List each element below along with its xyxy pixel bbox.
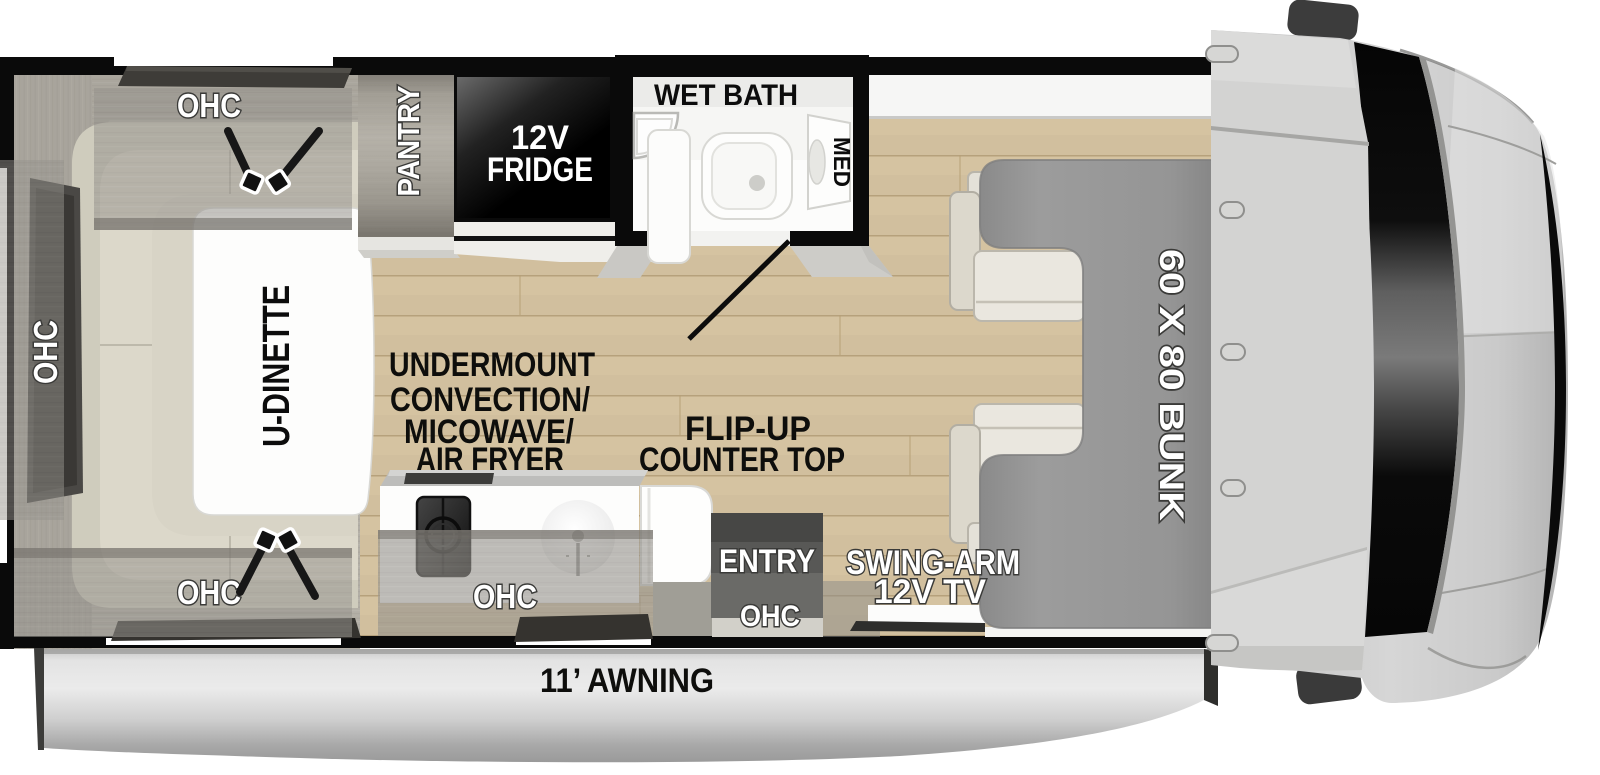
svg-text:UNDERMOUNT: UNDERMOUNT <box>389 346 595 384</box>
svg-text:WET BATH: WET BATH <box>654 79 798 112</box>
svg-text:PANTRY: PANTRY <box>391 85 426 196</box>
svg-text:OHC: OHC <box>740 600 800 633</box>
svg-text:COUNTER TOP: COUNTER TOP <box>639 441 845 479</box>
svg-text:U-DINETTE: U-DINETTE <box>256 285 298 447</box>
svg-text:MED: MED <box>829 137 855 187</box>
svg-text:FRIDGE: FRIDGE <box>487 151 593 189</box>
svg-text:12V TV: 12V TV <box>874 573 986 611</box>
svg-text:OHC: OHC <box>473 578 537 615</box>
svg-text:OHC: OHC <box>177 87 241 124</box>
svg-text:60 X 80 BUNK: 60 X 80 BUNK <box>1152 249 1190 522</box>
svg-text:ENTRY: ENTRY <box>719 543 815 579</box>
svg-text:OHC: OHC <box>27 320 64 384</box>
svg-text:11’ AWNING: 11’ AWNING <box>540 662 714 700</box>
svg-text:OHC: OHC <box>177 574 241 611</box>
